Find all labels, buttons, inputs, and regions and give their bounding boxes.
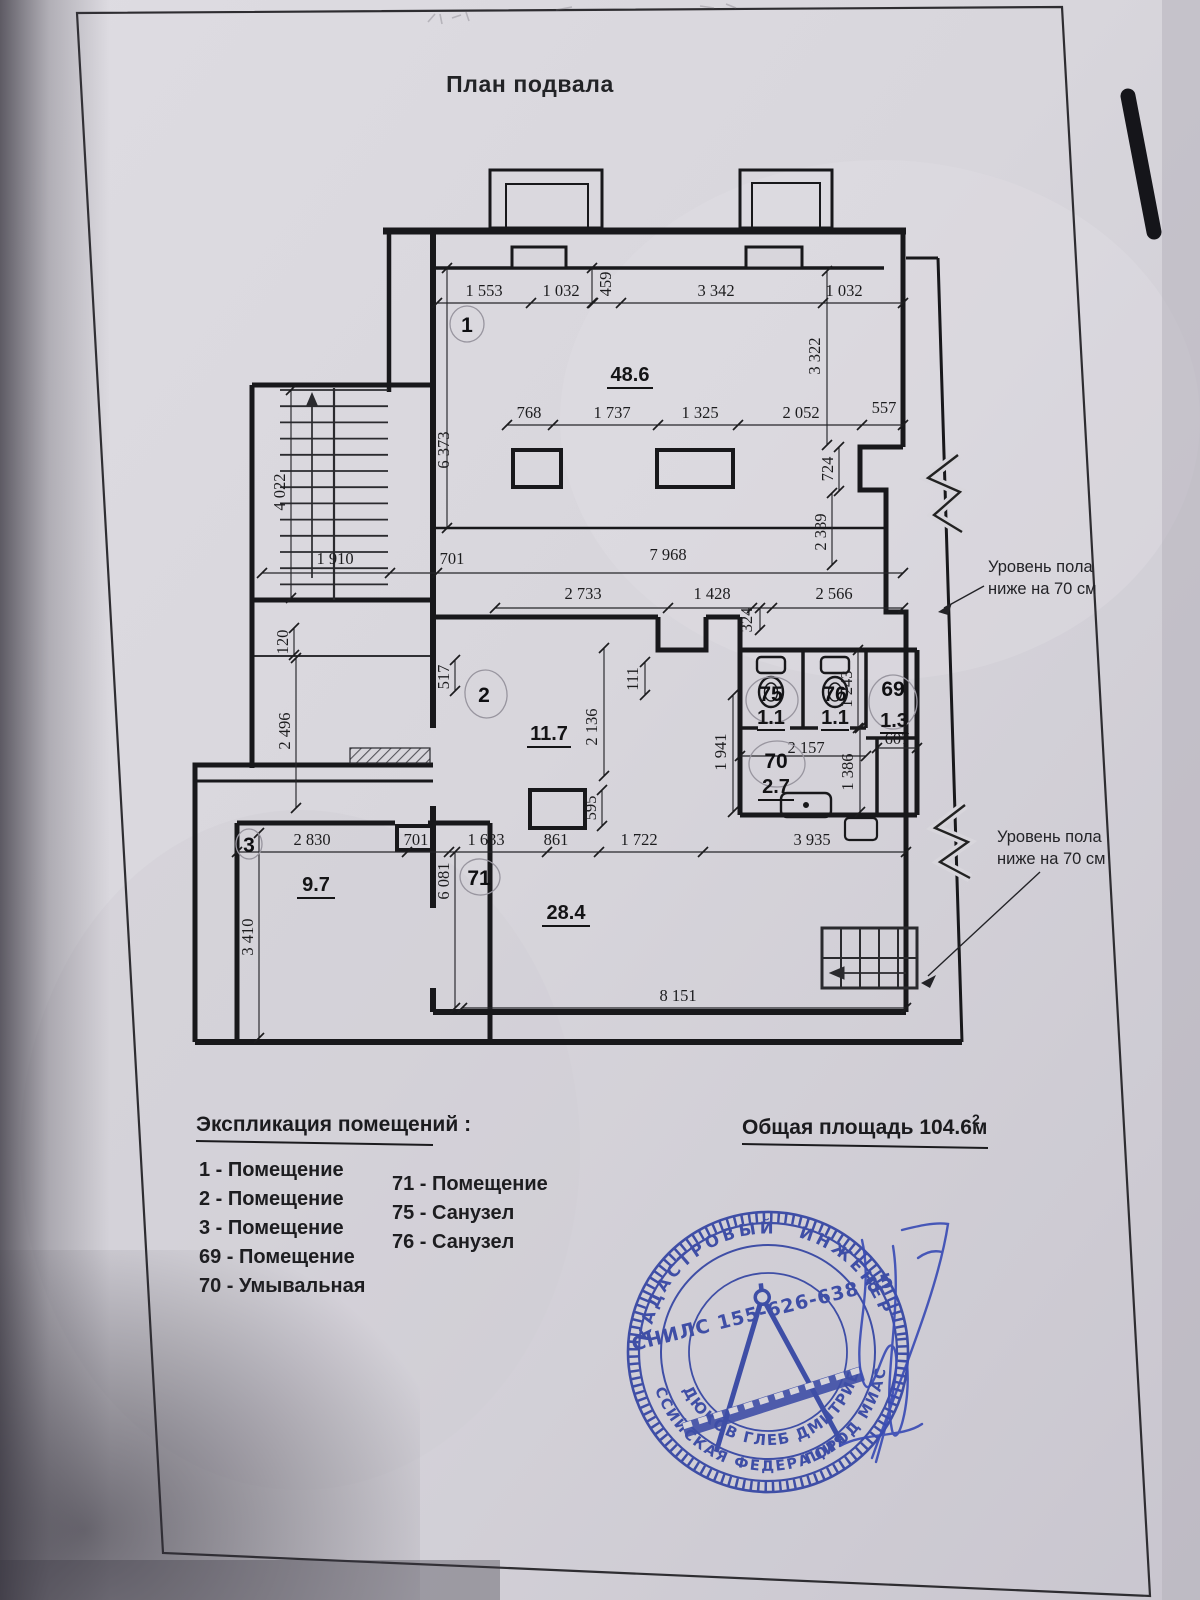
room-number: 1 [461, 314, 473, 337]
dim-label: 861 [544, 830, 569, 849]
dim-label: 517 [434, 665, 453, 690]
dim-label: 2 733 [564, 584, 601, 603]
room-area: 9.7 [302, 874, 330, 896]
dim-label: 1 722 [620, 830, 657, 849]
floorplan-drawing: 1 553 1 032 459 3 342 1 032 768 1 737 1 … [0, 0, 1200, 1600]
legend-heading: Экспликация помещений : [196, 1113, 471, 1136]
dim-label: 724 [818, 457, 837, 482]
legend-item: 3 - Помещение [199, 1217, 344, 1239]
dim-label: 8 151 [659, 986, 696, 1005]
room-number: 3 [243, 834, 255, 857]
dim-label: 1 325 [681, 403, 718, 422]
dim-label: 557 [872, 398, 897, 417]
dim-label: 3 410 [238, 918, 257, 955]
dim-label: 2 830 [293, 830, 330, 849]
bottom-edge-shadow [0, 1560, 500, 1600]
dim-label: 4 022 [270, 473, 289, 510]
legend-item: 1 - Помещение [199, 1159, 344, 1181]
room-number: 69 [881, 678, 904, 701]
room-area: 1.1 [757, 707, 785, 729]
dim-label: 3 935 [793, 830, 830, 849]
door-threshold-hatch [350, 748, 430, 763]
legend-item: 2 - Помещение [199, 1188, 344, 1210]
room-area: 28.4 [547, 902, 587, 924]
dim-label: 2 496 [275, 712, 294, 749]
dim-label: 2 052 [782, 403, 819, 422]
dim-label: 1 910 [316, 549, 353, 568]
page-title: План подвала [446, 71, 614, 97]
room-number: 2 [478, 684, 490, 707]
dim-label: 2 136 [582, 708, 601, 745]
dim-label: 768 [517, 403, 542, 422]
dim-label: 1 032 [825, 281, 862, 300]
room-number: 76 [823, 683, 846, 706]
dim-label: 2 339 [811, 513, 830, 550]
room-area: 2.7 [762, 776, 790, 798]
dim-label: 2 157 [787, 738, 824, 757]
room-number: 70 [764, 750, 787, 773]
dim-label: 111 [623, 667, 642, 691]
room-area: 48.6 [611, 364, 650, 386]
dim-label: 3 322 [805, 337, 824, 374]
photographed-document-page: 1 553 1 032 459 3 342 1 032 768 1 737 1 … [0, 0, 1200, 1600]
paper-sheen [560, 160, 1200, 680]
dim-label: 3 342 [697, 281, 734, 300]
room-number: 75 [759, 683, 783, 706]
floor-note-line2: ниже на 70 см [988, 580, 1097, 598]
dim-label: 324 [737, 608, 756, 633]
dim-label: 701 [440, 549, 465, 568]
total-area-label: Общая площадь 104.6м [742, 1116, 987, 1139]
dim-label: 7 968 [649, 545, 686, 564]
floor-note-line2: ниже на 70 см [997, 850, 1106, 868]
dim-label: 1 032 [542, 281, 579, 300]
floor-note-line1: Уровень пола [997, 828, 1103, 846]
floor-note-line1: Уровень пола [988, 558, 1094, 576]
dim-label: 595 [581, 796, 600, 821]
room-area: 1.3 [880, 710, 908, 732]
dim-label: 459 [596, 272, 615, 297]
legend-item: 71 - Помещение [392, 1173, 548, 1195]
legend-item: 76 - Санузел [392, 1231, 514, 1253]
dim-label: 1 428 [693, 584, 730, 603]
dim-label: 6 081 [434, 862, 453, 899]
dim-label: 1 737 [593, 403, 630, 422]
total-area-superscript: 2 [972, 1111, 980, 1127]
right-edge-shade [1162, 0, 1200, 1600]
dim-label: 2 566 [815, 584, 852, 603]
dim-label: 701 [404, 830, 429, 849]
dim-label: 1 941 [711, 733, 730, 770]
legend-item: 75 - Санузел [392, 1202, 514, 1224]
room-area: 1.1 [821, 707, 849, 729]
dim-label: 1 633 [467, 830, 504, 849]
room-number: 71 [467, 867, 491, 890]
page-corner-shadow [0, 1250, 420, 1600]
dim-label: 1 553 [465, 281, 502, 300]
room-area: 11.7 [530, 723, 568, 745]
dim-label: 1 386 [838, 753, 857, 790]
dim-label: 6 373 [434, 431, 453, 468]
dim-label: 120 [273, 630, 292, 655]
